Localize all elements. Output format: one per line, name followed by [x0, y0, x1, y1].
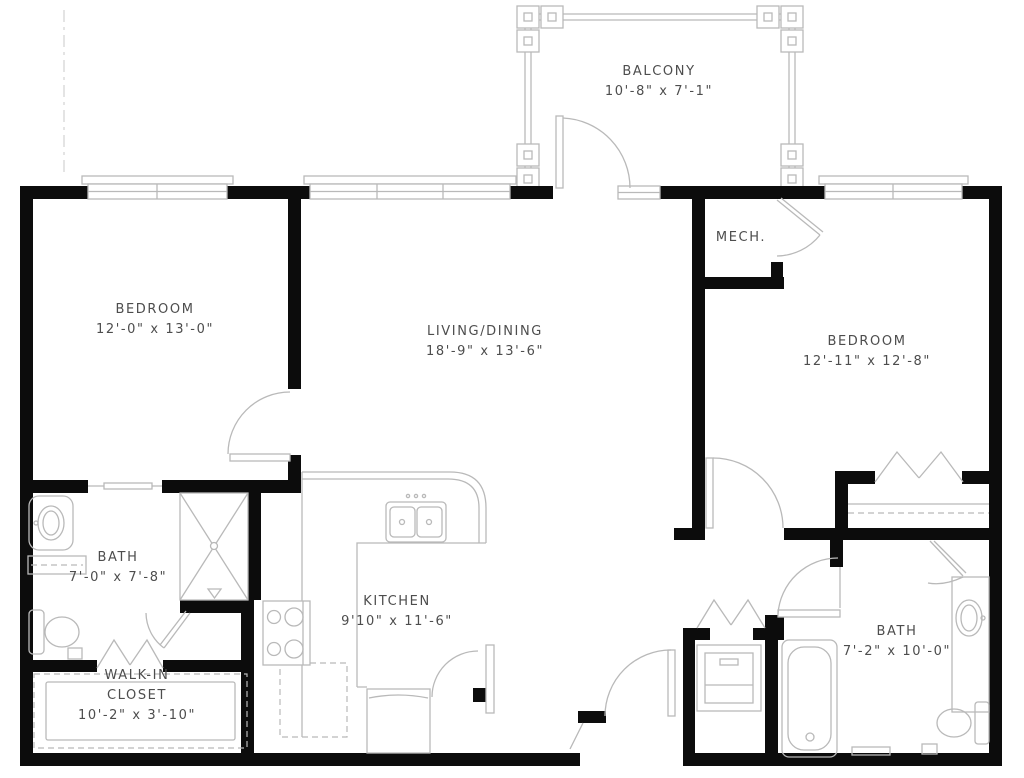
room-dims: 12'-0" x 13'-0"	[55, 320, 255, 340]
room-dims: 9'10" x 11'-6"	[317, 612, 477, 632]
window	[819, 176, 968, 199]
room-label-bath-left: BATH 7'-0" x 7'-8"	[48, 548, 188, 588]
room-label-balcony: BALCONY 10'-8" x 7'-1"	[559, 62, 759, 102]
room-name: BALCONY	[559, 62, 759, 82]
room-dims: 18'-9" x 13'-6"	[385, 342, 585, 362]
mech-door	[777, 198, 823, 256]
shower	[180, 493, 248, 600]
laundry-closet	[697, 600, 765, 711]
room-name: WALK-IN	[37, 666, 237, 686]
pantry-door	[432, 651, 478, 697]
entry-door	[570, 650, 675, 749]
room-dims: 7'-2" x 10'-0"	[817, 642, 977, 662]
room-name-line2: CLOSET	[37, 686, 237, 706]
floor-plan: BALCONY 10'-8" x 7'-1" BEDROOM 12'-0" x …	[0, 0, 1024, 778]
balcony-door	[556, 116, 660, 199]
room-dims: 10'-8" x 7'-1"	[559, 82, 759, 102]
stove	[263, 601, 310, 665]
room-dims: 10'-2" x 3'-10"	[37, 706, 237, 726]
room-name: BATH	[48, 548, 188, 568]
room-name: BEDROOM	[55, 300, 255, 320]
room-label-bath-right: BATH 7'-2" x 10'-0"	[817, 622, 977, 662]
room-name: BATH	[817, 622, 977, 642]
room-name: KITCHEN	[317, 592, 477, 612]
room-label-walk-in-closet: WALK-IN CLOSET 10'-2" x 3'-10"	[37, 666, 237, 726]
window	[304, 176, 516, 199]
bedroom-right-door	[706, 458, 783, 528]
room-label-living-dining: LIVING/DINING 18'-9" x 13'-6"	[385, 322, 585, 362]
room-dims: 12'-11" x 12'-8"	[767, 352, 967, 372]
bedroom-left-door	[228, 392, 290, 461]
bath-left-door	[146, 611, 190, 648]
room-label-kitchen: KITCHEN 9'10" x 11'-6"	[317, 592, 477, 632]
room-label-bedroom-left: BEDROOM 12'-0" x 13'-0"	[55, 300, 255, 340]
refrigerator	[367, 689, 430, 753]
kitchen-sink	[386, 494, 446, 542]
room-label-bedroom-right: BEDROOM 12'-11" x 12'-8"	[767, 332, 967, 372]
room-name: LIVING/DINING	[385, 322, 585, 342]
room-label-mech: MECH.	[700, 228, 782, 248]
room-name: MECH.	[700, 228, 782, 248]
room-dims: 7'-0" x 7'-8"	[48, 568, 188, 588]
room-name: BEDROOM	[767, 332, 967, 352]
pocket-door	[88, 483, 162, 489]
window	[82, 176, 233, 199]
